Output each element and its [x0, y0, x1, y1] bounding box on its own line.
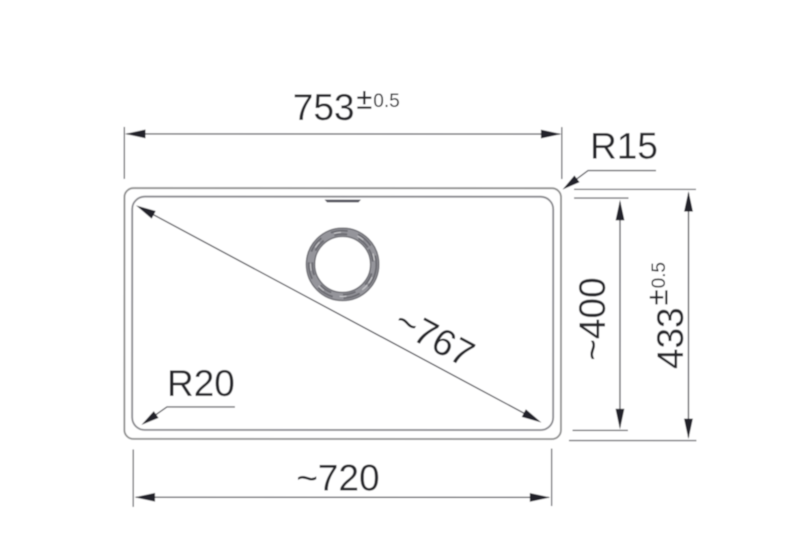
svg-text:~720: ~720 [296, 457, 379, 498]
svg-text:R15: R15 [590, 126, 658, 167]
svg-text:~400: ~400 [572, 277, 613, 360]
svg-text:R20: R20 [167, 363, 235, 404]
svg-text:0.5: 0.5 [373, 91, 399, 112]
svg-text:753: 753 [293, 87, 355, 128]
svg-text:0.5: 0.5 [649, 262, 670, 288]
svg-text:433: 433 [650, 307, 691, 369]
